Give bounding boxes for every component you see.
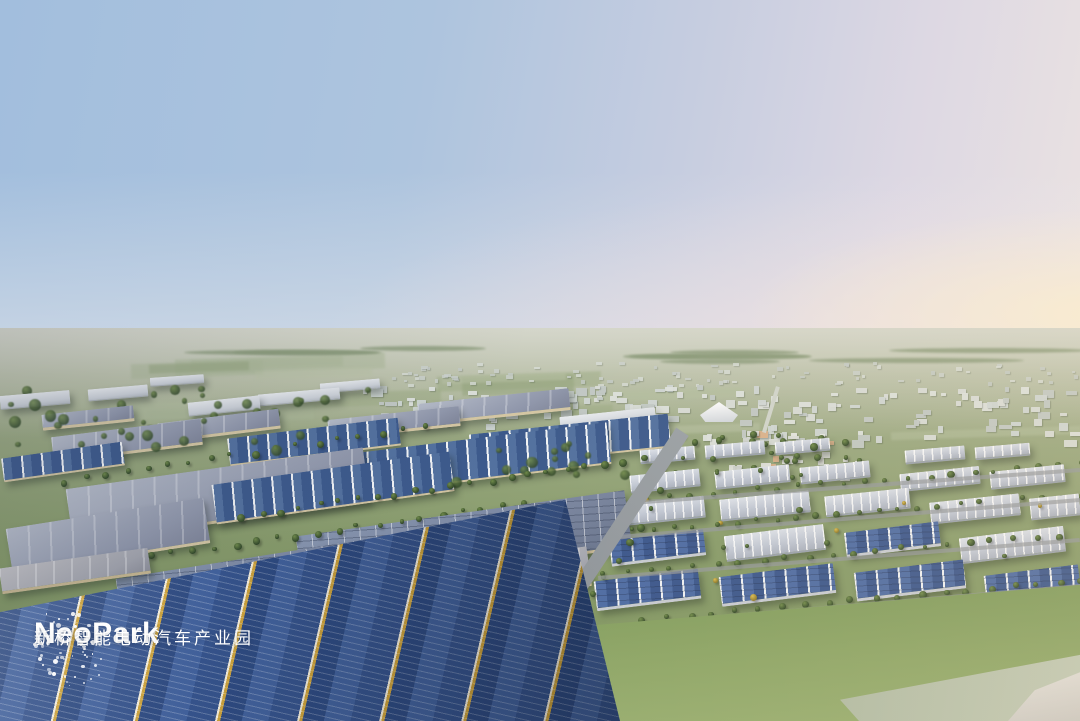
distant-building — [956, 367, 962, 371]
tree — [776, 433, 781, 438]
logo-dot — [64, 675, 66, 677]
distant-building — [856, 388, 868, 393]
factory-building — [905, 445, 966, 464]
tree — [619, 459, 627, 467]
distant-building — [1074, 375, 1077, 379]
distant-building — [447, 382, 452, 386]
distant-building — [392, 377, 396, 380]
logo-dot — [81, 665, 84, 668]
distant-building — [1047, 372, 1051, 375]
tree — [755, 485, 760, 490]
distant-building — [835, 383, 841, 385]
tree — [198, 386, 205, 393]
distant-building — [595, 386, 600, 389]
distant-building — [685, 378, 691, 381]
tree — [641, 455, 647, 461]
tree — [732, 607, 738, 613]
distant-building — [999, 425, 1011, 430]
distant-building — [478, 370, 483, 374]
distant-building — [444, 374, 451, 377]
distant-building — [534, 367, 540, 369]
logo-dot — [100, 658, 102, 660]
distant-building — [793, 407, 802, 414]
distant-building — [1060, 413, 1067, 416]
logo-dot — [71, 612, 75, 616]
tree — [1013, 582, 1019, 588]
tree — [375, 494, 381, 500]
tree — [965, 612, 972, 619]
distant-building — [597, 397, 603, 400]
distant-building — [477, 363, 483, 366]
tree — [973, 470, 978, 475]
distant-building — [1070, 432, 1080, 436]
distant-building — [468, 391, 477, 394]
distant-building — [529, 380, 534, 382]
tree — [182, 398, 188, 404]
distant-building — [1045, 431, 1054, 437]
tree — [61, 480, 68, 487]
logo-dot — [86, 656, 88, 658]
tree — [429, 488, 435, 494]
distant-building — [806, 414, 815, 421]
logo-dot — [52, 672, 56, 676]
distant-building — [812, 406, 817, 414]
logo-dot — [66, 681, 68, 683]
tree — [151, 442, 161, 452]
distant-building — [876, 436, 882, 443]
tree — [667, 493, 672, 498]
tree — [601, 461, 609, 469]
tree — [253, 537, 260, 544]
tree — [710, 456, 716, 462]
distant-building — [784, 420, 796, 424]
distant-building — [856, 377, 859, 380]
tree — [824, 540, 830, 546]
distant-building — [486, 381, 491, 385]
distant-building — [1021, 387, 1028, 394]
logo-dot — [72, 655, 74, 657]
tree — [490, 479, 497, 486]
distant-building — [724, 370, 730, 374]
distant-building — [707, 379, 711, 382]
tree — [237, 514, 245, 522]
tree — [319, 501, 324, 506]
distant-building — [490, 374, 495, 377]
distant-building — [672, 372, 675, 374]
tree — [637, 524, 645, 532]
tree — [657, 487, 664, 494]
distant-building — [415, 377, 419, 381]
logo-dot — [82, 651, 84, 653]
logo-dot — [98, 674, 100, 676]
tree — [561, 443, 569, 451]
distant-building — [718, 370, 723, 373]
tree — [616, 558, 622, 564]
distant-building — [544, 413, 551, 419]
distant-building — [850, 405, 859, 409]
tree — [365, 387, 371, 393]
distant-building — [1023, 407, 1029, 414]
distant-building — [449, 395, 454, 399]
tree — [189, 547, 196, 554]
distant-building — [974, 401, 982, 408]
horizon-treeline — [809, 358, 1024, 363]
distant-building — [914, 420, 919, 426]
tree — [292, 534, 299, 541]
tree — [186, 461, 190, 465]
tree — [794, 615, 800, 621]
distant-building — [726, 400, 735, 407]
tree — [573, 471, 580, 478]
distant-building — [1034, 419, 1043, 426]
brand-subtitle: 新桥智能电动汽车产业园 — [34, 624, 254, 649]
distant-building — [419, 376, 425, 380]
tree — [790, 475, 795, 480]
tree — [526, 457, 538, 469]
distant-building — [379, 402, 383, 405]
tree — [1011, 606, 1016, 611]
distant-building — [732, 381, 737, 383]
distant-building — [1005, 371, 1010, 374]
distant-building — [777, 367, 783, 371]
tree — [401, 426, 405, 430]
distant-building — [772, 375, 775, 377]
distant-building — [599, 377, 603, 380]
distant-building — [738, 401, 747, 405]
tree — [15, 442, 20, 447]
distant-building — [736, 391, 744, 397]
distant-building — [723, 380, 727, 383]
tree — [552, 456, 558, 462]
tree — [857, 510, 862, 515]
logo-dot — [83, 682, 85, 684]
tree — [212, 547, 217, 552]
distant-building — [1040, 367, 1045, 370]
distant-building — [873, 362, 877, 364]
logo-dot — [74, 676, 76, 678]
tree — [251, 438, 258, 445]
tree — [923, 545, 927, 549]
distant-building — [816, 419, 823, 424]
tree — [8, 402, 14, 408]
distant-building — [371, 389, 383, 397]
distant-building — [941, 393, 947, 397]
distant-building — [581, 380, 585, 384]
distant-building — [788, 436, 799, 440]
distant-building — [385, 402, 398, 406]
tree — [763, 642, 769, 648]
tree — [796, 507, 802, 513]
tree — [590, 591, 596, 597]
tree — [842, 439, 849, 446]
distant-building — [665, 387, 677, 391]
distant-building — [858, 431, 863, 435]
tree — [672, 524, 677, 529]
tree — [461, 508, 465, 512]
horizon-treeline — [889, 348, 1080, 353]
distant-building — [1072, 371, 1075, 374]
distant-building — [676, 375, 680, 378]
distant-building — [828, 403, 836, 411]
distant-building — [966, 371, 970, 373]
tree — [509, 474, 516, 481]
tree — [146, 466, 152, 472]
tree — [151, 391, 158, 398]
distant-building — [1031, 407, 1040, 412]
distant-building — [408, 384, 414, 388]
distant-building — [398, 401, 403, 406]
distant-building — [877, 365, 881, 369]
tree — [750, 431, 756, 437]
tree — [566, 467, 571, 472]
distant-building — [986, 426, 996, 432]
tree — [200, 393, 205, 398]
logo-dot — [94, 664, 97, 667]
distant-building — [486, 424, 494, 430]
distant-building — [918, 388, 927, 392]
tree — [834, 528, 839, 533]
tree — [93, 416, 98, 421]
distant-building — [1026, 377, 1031, 381]
tree — [967, 539, 974, 546]
tree — [714, 651, 721, 658]
distant-building — [697, 385, 703, 389]
distant-building — [1010, 380, 1014, 383]
tree — [769, 451, 773, 455]
tree — [736, 646, 740, 650]
tree — [690, 655, 696, 661]
tree — [895, 507, 899, 511]
distant-building — [751, 408, 758, 416]
distant-building — [607, 380, 614, 383]
distant-building — [879, 397, 885, 404]
distant-building — [616, 398, 627, 403]
tree — [781, 641, 788, 648]
distant-building — [630, 381, 635, 384]
tree — [353, 523, 357, 527]
distant-building — [996, 366, 1001, 368]
distant-building — [771, 425, 777, 432]
tree — [779, 455, 784, 460]
tree — [818, 480, 823, 485]
distant-building — [742, 430, 746, 438]
distant-building — [931, 371, 935, 375]
distant-building — [1005, 387, 1009, 392]
distant-building — [956, 401, 961, 406]
logo-dot — [56, 656, 59, 659]
distant-building — [930, 391, 936, 397]
distant-building — [494, 369, 499, 373]
distant-building — [754, 386, 758, 394]
tree — [356, 495, 360, 499]
distant-building — [1038, 380, 1043, 383]
tree — [261, 511, 267, 517]
distant-building — [576, 374, 581, 377]
tree — [214, 401, 222, 409]
horizon-treeline — [360, 346, 486, 351]
tree — [234, 543, 241, 550]
tree — [846, 596, 853, 603]
tree — [792, 458, 798, 464]
distant-building — [733, 363, 739, 366]
distant-building — [1011, 431, 1019, 435]
tree — [355, 434, 360, 439]
distant-building — [429, 387, 435, 392]
logo-dot — [59, 652, 61, 654]
tree — [758, 468, 762, 472]
distant-building — [573, 370, 579, 373]
horizon-treeline — [233, 350, 382, 355]
distant-building — [758, 400, 767, 405]
distant-building — [1038, 412, 1050, 419]
tree — [830, 635, 834, 639]
factory-building — [719, 563, 837, 607]
tree — [1033, 582, 1038, 587]
tree — [630, 527, 635, 532]
distant-building — [939, 373, 944, 377]
tree — [987, 607, 994, 614]
tree — [84, 474, 89, 479]
tree — [416, 516, 422, 522]
tree — [391, 493, 398, 500]
factory-building — [975, 443, 1031, 461]
distant-building — [962, 393, 968, 401]
tree — [585, 452, 592, 459]
tree — [170, 385, 180, 395]
tree — [754, 517, 758, 521]
distant-building — [427, 367, 430, 370]
distant-building — [1066, 391, 1077, 394]
distant-building — [596, 391, 605, 395]
tree — [322, 416, 328, 422]
tree — [796, 482, 801, 487]
distant-building — [923, 410, 931, 416]
distant-building — [938, 426, 943, 433]
tree — [781, 554, 787, 560]
distant-building — [655, 389, 665, 392]
distant-building — [853, 371, 860, 374]
tree — [664, 614, 669, 619]
distant-building — [1003, 398, 1010, 403]
tree — [126, 468, 131, 473]
tree — [271, 445, 282, 456]
tree — [715, 471, 719, 475]
logo-dot — [69, 685, 71, 687]
tree — [467, 480, 472, 485]
distant-building — [458, 368, 461, 371]
distant-building — [862, 375, 865, 378]
tree — [808, 634, 812, 638]
distant-building — [703, 435, 711, 441]
tree — [716, 437, 723, 444]
distant-building — [710, 395, 714, 400]
distant-building — [804, 372, 809, 375]
tree — [844, 455, 849, 460]
logo-dot — [42, 664, 44, 666]
tree — [165, 461, 170, 466]
tree — [412, 487, 418, 493]
distant-building — [702, 394, 706, 398]
tree — [317, 441, 324, 448]
logo-dot — [92, 653, 94, 655]
distant-building — [584, 398, 590, 404]
tree — [141, 420, 146, 425]
tree — [670, 656, 675, 661]
tree — [626, 664, 633, 671]
distant-building — [567, 376, 571, 379]
distant-building — [656, 406, 669, 413]
distant-building — [890, 393, 897, 398]
tree — [102, 472, 110, 480]
distant-building — [435, 379, 438, 383]
logo-dot — [90, 678, 92, 680]
distant-building — [1011, 422, 1021, 427]
tree — [644, 660, 652, 668]
distant-building — [740, 420, 752, 427]
tree — [209, 455, 215, 461]
distant-building — [864, 417, 873, 422]
distant-building — [846, 364, 849, 367]
tree — [877, 508, 881, 512]
distant-building — [1049, 381, 1052, 384]
tree — [581, 463, 587, 469]
tree — [652, 527, 656, 531]
tree — [400, 519, 405, 524]
tree — [894, 623, 900, 629]
distant-building — [822, 452, 831, 458]
distant-building — [800, 376, 806, 378]
logo-dot — [38, 657, 42, 661]
tree — [814, 454, 821, 461]
distant-building — [831, 393, 838, 396]
logo-dot — [63, 658, 65, 660]
distant-building — [786, 366, 790, 369]
distant-building — [799, 402, 810, 407]
tree — [551, 448, 558, 455]
tree — [713, 578, 718, 583]
tree — [918, 618, 925, 625]
logo-dot — [40, 654, 43, 657]
distant-building — [924, 435, 937, 439]
tree — [502, 465, 511, 474]
distant-building — [679, 384, 684, 387]
distant-building — [898, 380, 903, 383]
horizon-treeline — [660, 359, 781, 364]
distant-building — [619, 362, 625, 365]
tree — [45, 410, 56, 421]
tree — [810, 443, 817, 450]
tree — [335, 498, 340, 503]
aerial-rendering: NeoPark 新桥智能电动汽车产业园 — [0, 0, 1080, 721]
factory-building — [799, 460, 870, 484]
distant-building — [404, 380, 407, 383]
distant-building — [773, 456, 779, 461]
tree — [547, 467, 557, 477]
distant-building — [916, 379, 920, 381]
distant-building — [622, 383, 628, 386]
tree — [626, 539, 633, 546]
distant-building — [1044, 400, 1050, 408]
tree — [299, 398, 304, 403]
tree — [275, 534, 279, 538]
tree — [986, 537, 992, 543]
tree — [9, 416, 21, 428]
distant-building — [506, 375, 513, 379]
distant-building — [677, 392, 683, 398]
distant-building — [784, 412, 791, 418]
distant-building — [407, 398, 415, 402]
distant-building — [852, 440, 864, 448]
